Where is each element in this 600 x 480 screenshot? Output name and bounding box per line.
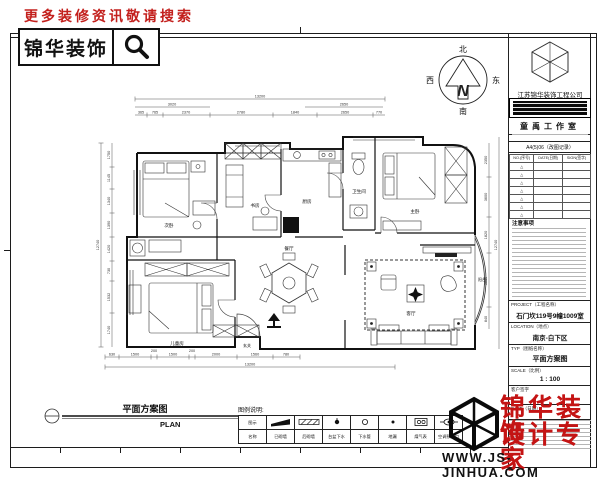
promo-banner-text: 更多装修资讯敬请搜索 <box>24 6 194 26</box>
field-scale-value: 1 : 100 <box>509 375 591 385</box>
svg-text:2370: 2370 <box>182 111 190 115</box>
sheet-title-block: 平面方案图 PLAN <box>40 398 250 430</box>
ruler-tick <box>300 447 301 453</box>
dim-chain-left: 12740 1750 1145 1340 1390 1420 730 1532 … <box>96 143 115 347</box>
floor-plan: 13200 3020 2650 365 765 2370 2780 1840 2… <box>85 85 505 390</box>
room-label-bed2: 次卧 <box>164 222 174 229</box>
revision-table: NO.(序号) DATE(日期) SIGN(签字) △ △ △ △ △ △ △ <box>509 154 591 219</box>
svg-text:1500: 1500 <box>131 353 139 357</box>
rev-col-sign: SIGN(签字) <box>563 155 591 163</box>
legend-name-floor-drain: 地漏 <box>379 430 407 444</box>
svg-text:1500: 1500 <box>169 353 177 357</box>
revision-title: A4(5)06（改图记录） <box>509 141 591 153</box>
room-label-kitchen: 厨房 <box>302 198 312 205</box>
svg-text:2000: 2000 <box>212 353 220 357</box>
field-type-value: 平面方案图 <box>509 353 591 366</box>
room-label-balcony: 阳台 <box>478 276 486 282</box>
field-scale-label: SCALE（比例） <box>509 366 591 375</box>
sheet-title: 平面方案图 <box>122 403 167 414</box>
svg-text:3020: 3020 <box>168 103 176 107</box>
dim-chain-top: 13200 3020 2650 365 765 2370 2780 1840 2… <box>135 95 385 118</box>
footer-url: WWW.JS-JINHUA.COM <box>442 450 600 480</box>
room-label-master: 主卧 <box>410 208 420 215</box>
svg-text:2650: 2650 <box>340 103 348 107</box>
field-type-label: TYP（图纸名称） <box>509 344 591 353</box>
footer-brand: 锦华装饰 设计专家 WWW.JS-JINHUA.COM <box>438 392 600 470</box>
legend-symbol-floor-drain <box>379 416 407 430</box>
dim-chain-bottom: 630 1500 200 1500 200 2000 1560 780 1320… <box>105 349 395 370</box>
svg-text:1390: 1390 <box>107 221 111 229</box>
furniture <box>129 143 471 345</box>
notes-text <box>512 228 586 298</box>
studio-name: 童禹工作室 <box>509 121 591 135</box>
field-location-label: LOCATION（地点） <box>509 322 591 331</box>
svg-text:770: 770 <box>376 111 382 115</box>
frame-inner-bottom-line <box>10 447 508 448</box>
legend-symbol-new-wall <box>295 416 323 430</box>
svg-text:12740: 12740 <box>96 240 100 251</box>
svg-text:1420: 1420 <box>107 245 111 253</box>
child-wardrobe <box>145 263 229 276</box>
room-label-study: 书房 <box>250 202 260 209</box>
svg-text:200: 200 <box>189 349 195 353</box>
room-label-dining: 餐厅 <box>284 245 294 252</box>
master-wardrobe <box>445 147 467 203</box>
svg-text:1820: 1820 <box>484 231 488 239</box>
svg-text:1560: 1560 <box>251 353 259 357</box>
magnifier-icon <box>114 30 158 64</box>
room-label-living: 客厅 <box>406 310 416 317</box>
studio-subline <box>512 134 588 138</box>
legend-name-existing-wall: 已砌墙 <box>267 430 295 444</box>
legend: 图例说明: 图示 名称 已砌墙 后砌墙 台盆下水 下水管 地漏 煤气表 空调预 <box>238 405 463 444</box>
outer-walls <box>127 137 475 349</box>
ruler-tick <box>180 447 181 453</box>
interior-walls <box>127 137 475 349</box>
svg-text:2350: 2350 <box>484 156 488 164</box>
drawing-sheet: 更多装修资讯敬请搜索 锦华装饰 N 北 东 西 南 <box>0 0 600 480</box>
legend-symbol-gas-meter <box>407 416 435 430</box>
door-arcs <box>201 173 397 337</box>
svg-text:780: 780 <box>283 353 289 357</box>
lamp-icon <box>267 313 281 328</box>
frame-center-tick-top <box>300 27 301 33</box>
svg-text:13200: 13200 <box>245 363 256 367</box>
legend-title: 图例说明: <box>238 405 463 414</box>
compass-west: 西 <box>426 76 434 85</box>
wardrobe-icons <box>225 143 281 159</box>
dining-set <box>260 253 319 313</box>
svg-text:1532: 1532 <box>107 293 111 301</box>
company-logo-cube <box>509 39 591 87</box>
notes-title: 注意事项 <box>509 219 591 227</box>
svg-text:630: 630 <box>109 353 115 357</box>
company-contact-bar <box>509 98 591 118</box>
svg-text:730: 730 <box>107 268 111 274</box>
svg-text:2650: 2650 <box>341 111 349 115</box>
legend-header-bottom: 名称 <box>239 430 267 444</box>
field-project-label: PROJECT（工程名称） <box>509 300 591 309</box>
compass-east: 东 <box>492 75 500 85</box>
svg-text:1750: 1750 <box>107 151 111 159</box>
ruler-tick <box>120 447 121 453</box>
svg-text:2780: 2780 <box>237 111 245 115</box>
compass-north: 北 <box>459 45 467 54</box>
rev-col-no: NO.(序号) <box>510 155 534 163</box>
legend-name-basin-drain: 台盆下水 <box>323 430 351 444</box>
entry-bench <box>213 325 259 337</box>
legend-symbol-drain-pipe <box>351 416 379 430</box>
brand-name: 锦华装饰 <box>20 30 114 64</box>
svg-text:1145: 1145 <box>107 174 111 182</box>
sheet-title-en: PLAN <box>160 420 180 429</box>
brand-search-box: 锦华装饰 <box>18 28 160 66</box>
svg-text:12740: 12740 <box>494 240 498 251</box>
ruler-tick <box>60 447 61 453</box>
svg-text:765: 765 <box>152 111 158 115</box>
svg-text:840: 840 <box>484 316 488 322</box>
svg-text:13200: 13200 <box>255 95 266 99</box>
field-project-value: 石门坎119号9幢1009室 <box>509 309 591 322</box>
legend-name-gas-meter: 煤气表 <box>407 430 435 444</box>
legend-symbol-basin-drain <box>323 416 351 430</box>
footer-logo-cube <box>446 396 502 452</box>
legend-header-top: 图示 <box>239 416 267 430</box>
svg-text:1740: 1740 <box>107 326 111 334</box>
ruler-tick <box>420 447 421 453</box>
ruler-tick <box>240 447 241 453</box>
dim-chain-right: 2350 3600 1820 3610 840 12740 <box>484 137 499 349</box>
svg-text:3600: 3600 <box>484 193 488 201</box>
legend-name-drain-pipe: 下水管 <box>351 430 379 444</box>
ruler-tick <box>360 447 361 453</box>
svg-text:1340: 1340 <box>107 197 111 205</box>
frame-center-tick-left <box>4 250 10 251</box>
frame-left-line <box>10 33 11 468</box>
legend-symbol-existing-wall <box>267 416 295 430</box>
room-label-child: 儿童房 <box>170 340 184 347</box>
field-location-value: 南京-白下区 <box>509 331 591 344</box>
legend-name-new-wall: 后砌墙 <box>295 430 323 444</box>
rev-col-date: DATE(日期) <box>534 155 563 163</box>
svg-text:1840: 1840 <box>291 111 299 115</box>
room-label-entry: 玄关 <box>243 342 251 348</box>
svg-text:200: 200 <box>151 349 157 353</box>
svg-text:365: 365 <box>138 111 144 115</box>
room-label-bath: 卫生间 <box>352 188 366 195</box>
